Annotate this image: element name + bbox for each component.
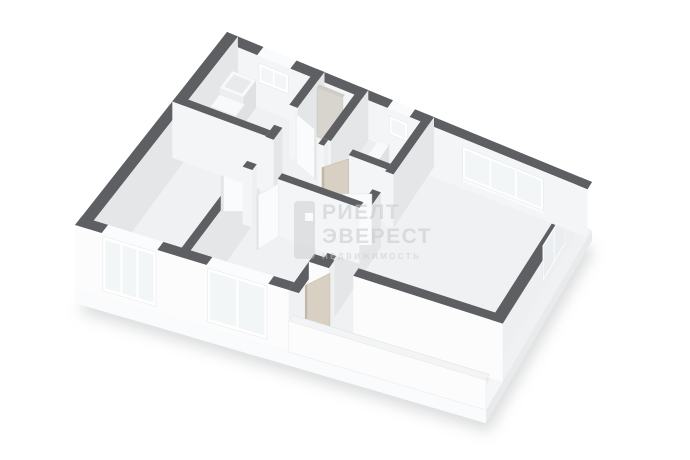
floorplan-3d-render [0,0,690,460]
floorplan-page: РИЕЛТ ЭВЕРЕСТ НЕДВИЖИМОСТЬ [0,0,690,460]
